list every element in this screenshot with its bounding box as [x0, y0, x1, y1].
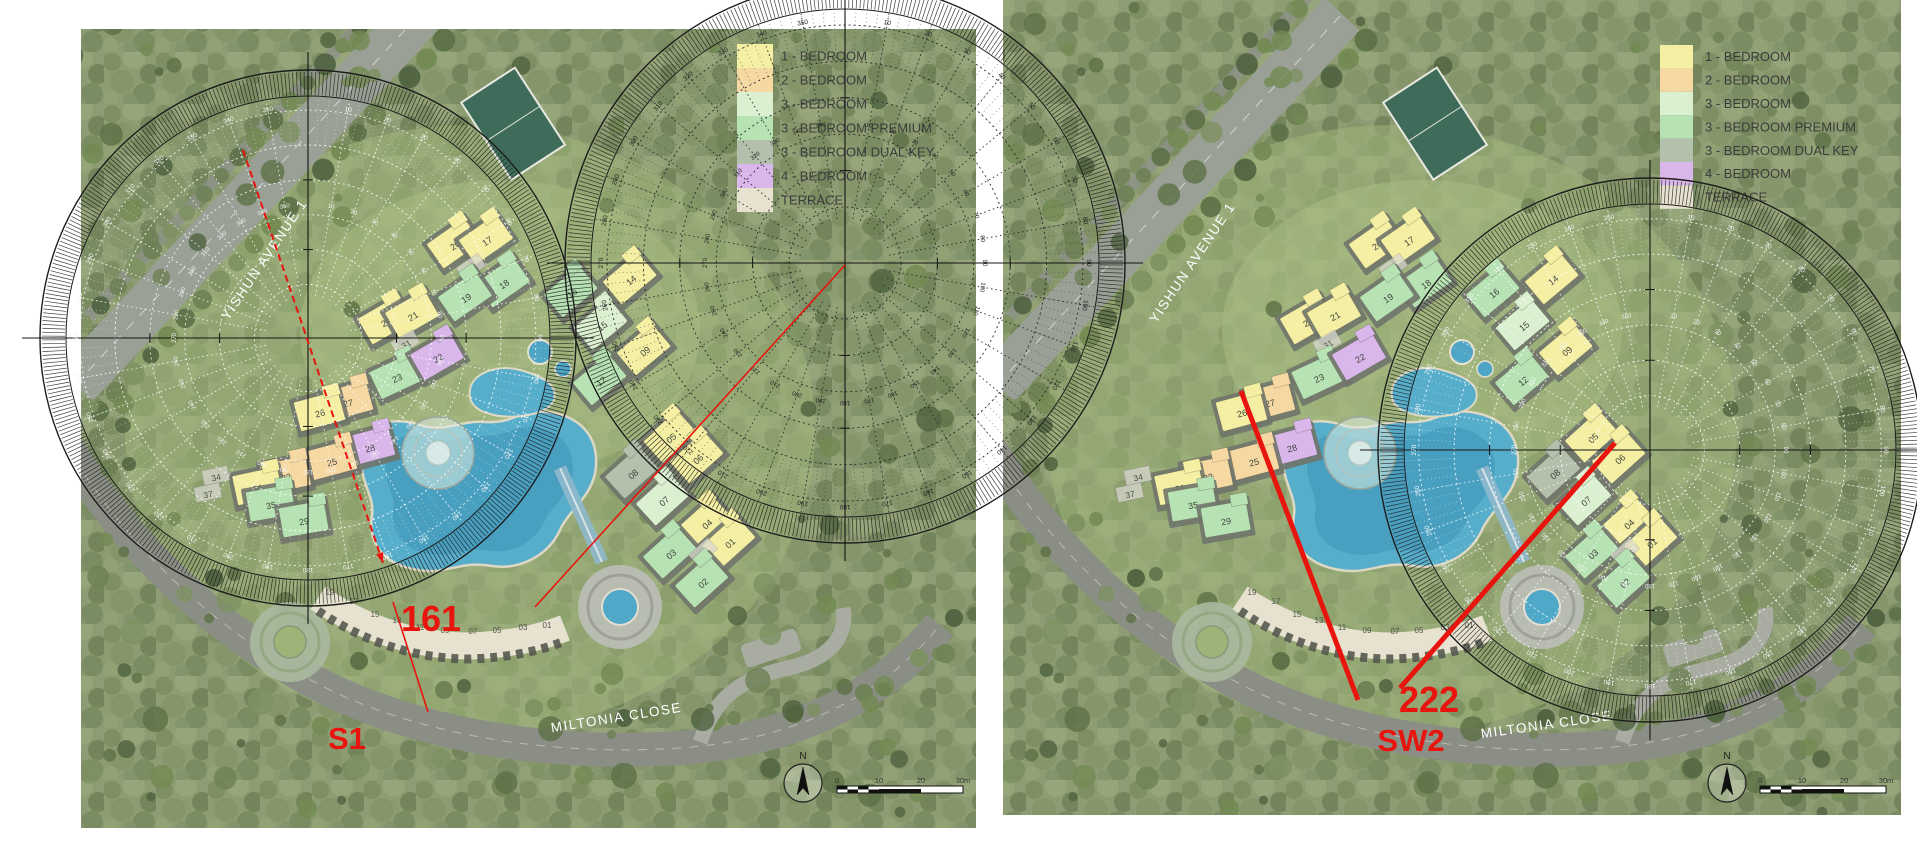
azimuth-label: 90	[536, 334, 543, 342]
legend-swatch	[737, 188, 773, 212]
red-label-222: 222	[1399, 679, 1459, 720]
azimuth-label: 270	[1512, 444, 1518, 455]
legend-label: 3 - BEDROOM DUAL KEY	[1705, 143, 1859, 158]
azimuth-label: 270	[703, 257, 709, 268]
azimuth-label: 180	[839, 399, 850, 405]
legend-swatch	[1660, 162, 1693, 185]
scale-label: 20	[1840, 776, 1848, 785]
scale-label: 30m	[1879, 776, 1894, 785]
terrace-unit-number: 09	[1363, 626, 1372, 635]
legend-label: 1 - BEDROOM	[1705, 49, 1791, 64]
north-label: N	[1723, 751, 1730, 762]
figure-canvas: 1917151311090705030120172918191416242131…	[0, 0, 1917, 843]
legend-label: 3 - BEDROOM DUAL KEY	[781, 145, 935, 160]
azimuth-label: 180	[1644, 582, 1655, 588]
terrace-unit-number: 03	[519, 623, 528, 632]
legend-label: 3 - BEDROOM PREMIUM	[781, 121, 932, 136]
azimuth-label: 180	[839, 503, 850, 510]
terrace-unit-number: 07	[469, 627, 478, 636]
legend-swatch	[1660, 139, 1693, 162]
legend-swatch	[737, 68, 773, 92]
terrace-unit-number: 05	[1415, 626, 1424, 635]
legend-swatch	[737, 116, 773, 140]
scale-label: 10	[875, 776, 883, 785]
azimuth-label: 270	[172, 332, 178, 343]
terrace-unit-number: 15	[1293, 610, 1302, 619]
scale-label: 10	[1798, 776, 1806, 785]
azimuth-label: 90	[1782, 447, 1788, 454]
azimuth-label: 180	[1644, 682, 1655, 689]
legend-swatch	[1660, 45, 1693, 68]
legend-swatch	[737, 92, 773, 116]
red-label-SW2: SW2	[1377, 723, 1444, 758]
azimuth-label: 80	[978, 235, 985, 243]
site-plan-comparison: 1917151311090705030120172918191416242131…	[0, 0, 1917, 843]
legend-label: 4 - BEDROOM	[1705, 166, 1791, 181]
azimuth-label: 180	[302, 468, 313, 474]
azimuth-label: 90	[1882, 446, 1889, 454]
azimuth-label: 270	[73, 332, 80, 343]
legend-label: 2 - BEDROOM	[1705, 73, 1791, 88]
azimuth-label: 90	[438, 335, 444, 342]
scale-label: 30m	[956, 776, 971, 785]
terrace-unit-number: 15	[371, 610, 380, 619]
legend-label: 4 - BEDROOM	[781, 169, 867, 184]
azimuth-label: 350	[797, 19, 809, 28]
legend-swatch	[1660, 92, 1693, 115]
scale-label: 0	[1758, 776, 1762, 785]
red-label-S1: S1	[328, 721, 366, 756]
scale-label: 0	[835, 776, 839, 785]
legend-swatch	[1660, 68, 1693, 91]
scale-label: 20	[917, 776, 925, 785]
terrace-unit-number: 17	[1272, 597, 1281, 606]
legend-swatch	[737, 44, 773, 68]
terrace-unit-number: 11	[1338, 623, 1347, 632]
terrace-unit-number: 01	[543, 621, 552, 630]
azimuth-label: 180	[302, 566, 313, 573]
legend-label: 3 - BEDROOM	[1705, 96, 1791, 111]
azimuth-label: 100	[978, 282, 986, 294]
terrace-unit-number: 07	[1391, 627, 1400, 636]
azimuth-label: 90	[1085, 259, 1092, 267]
legend-label: 2 - BEDROOM	[781, 73, 867, 88]
terrace-unit-number: 05	[493, 626, 502, 635]
azimuth-label: 90	[981, 260, 987, 267]
terrace-unit-number: 19	[1248, 588, 1257, 597]
terrace-unit-number: 13	[1315, 616, 1324, 625]
svg-text:29: 29	[1220, 516, 1232, 528]
azimuth-label: 10	[883, 19, 892, 27]
legend-swatch	[1660, 115, 1693, 138]
legend-label: 3 - BEDROOM	[781, 97, 867, 112]
red-label-161: 161	[401, 598, 461, 639]
azimuth-label: 270	[598, 257, 605, 268]
azimuth-label: 270	[1411, 444, 1418, 455]
north-label: N	[799, 751, 806, 762]
legend-swatch	[737, 164, 773, 188]
legend-label: 3 - BEDROOM PREMIUM	[1705, 119, 1856, 134]
